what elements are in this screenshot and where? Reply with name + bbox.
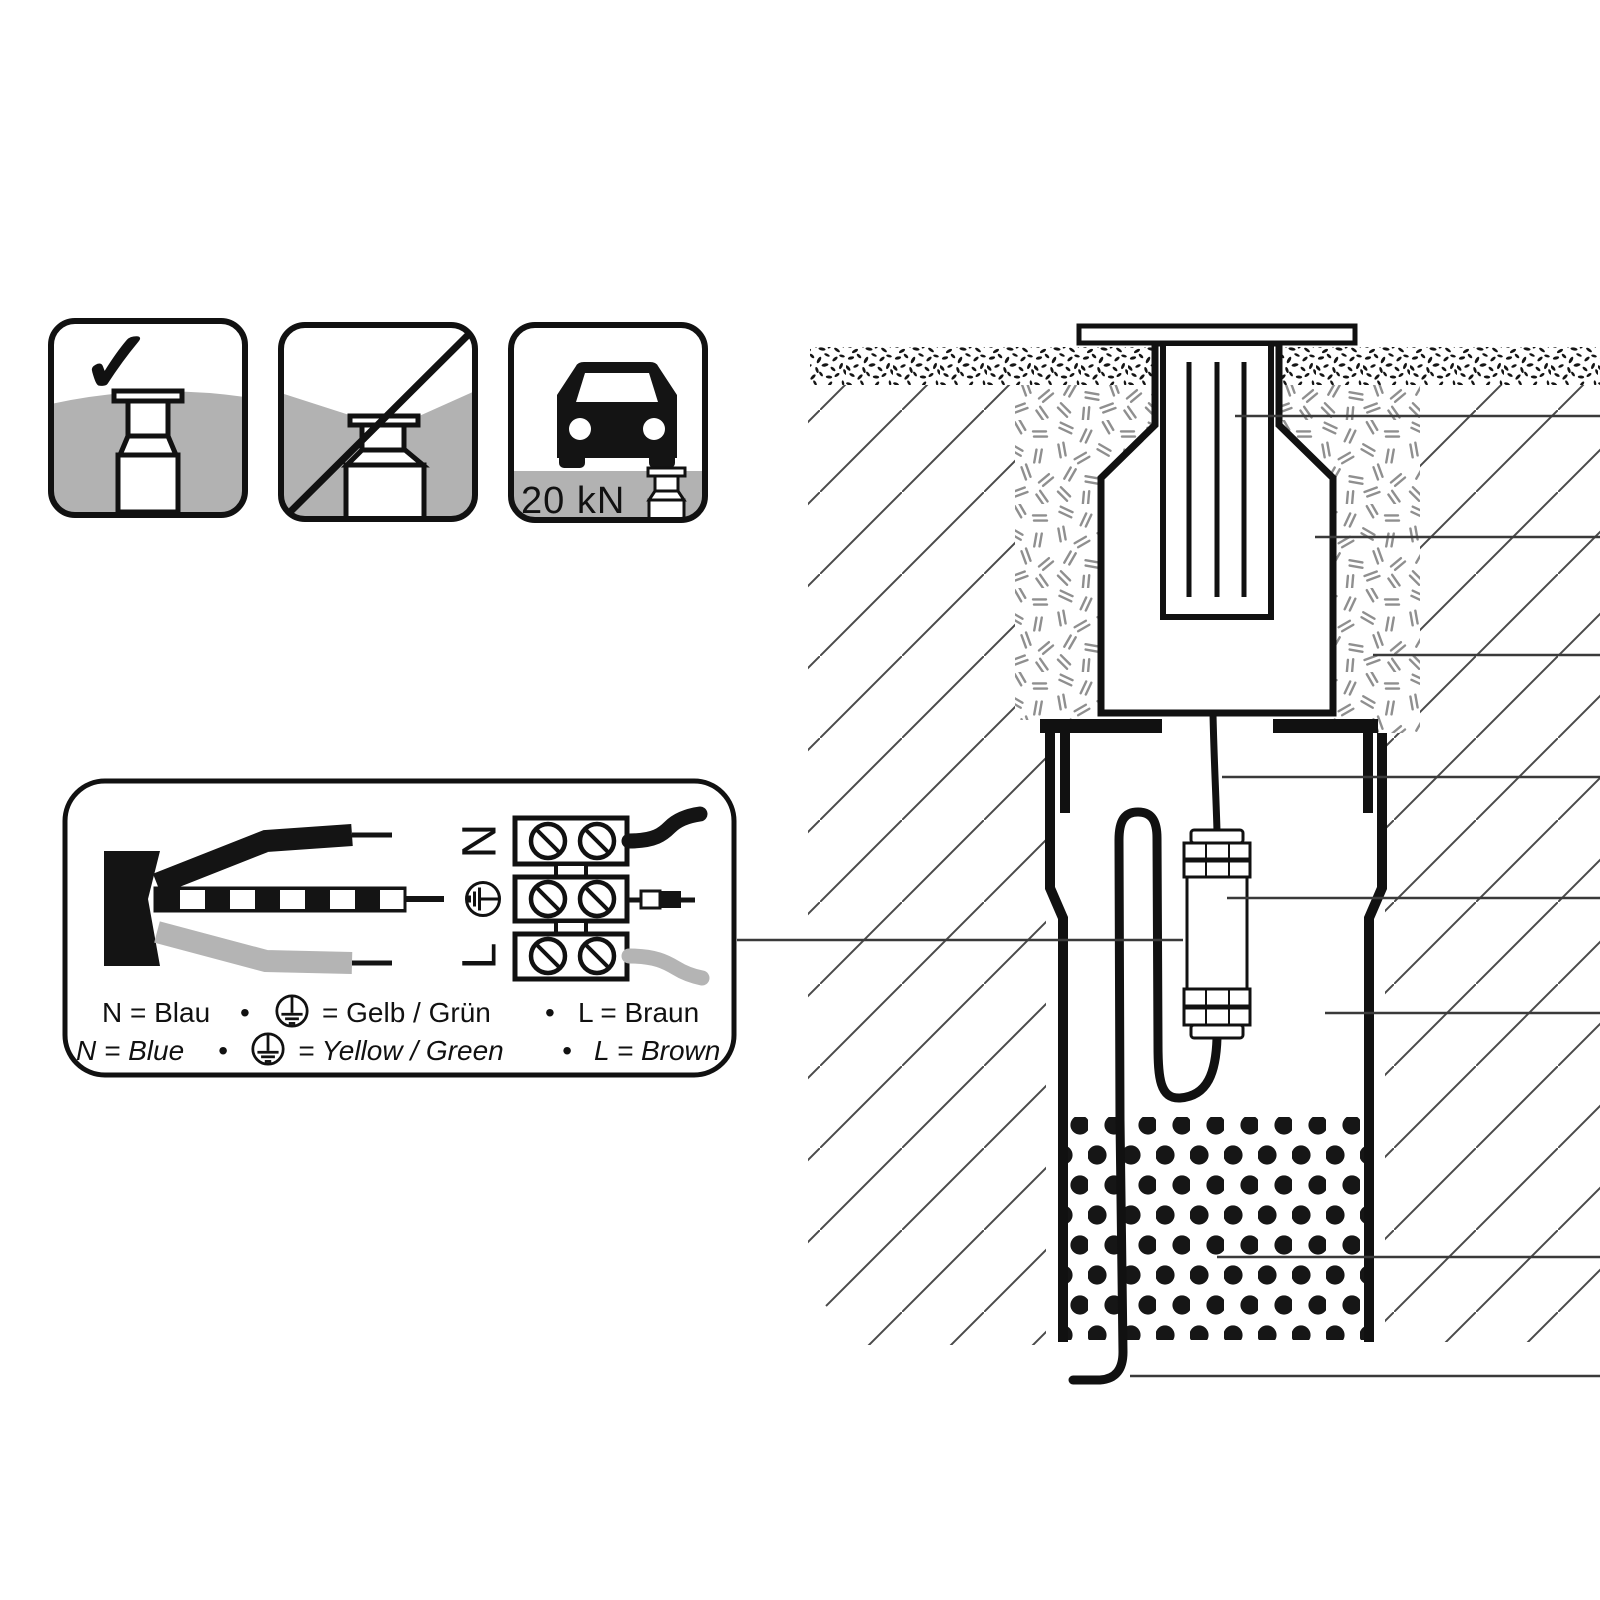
icon-allowed: ✓ <box>51 313 245 515</box>
legend-en-neutral: N = Blue <box>76 1035 184 1066</box>
legend-en-earth: = Yellow / Green <box>298 1035 504 1066</box>
icon-not-allowed <box>281 325 475 523</box>
legend-bullet: • <box>240 997 250 1028</box>
check-icon: ✓ <box>80 313 154 412</box>
legend-bullet: • <box>218 1035 228 1066</box>
cover-plate <box>1079 326 1355 343</box>
icon-drive-over: 20 kN <box>511 325 705 522</box>
fixture-cable <box>1213 714 1217 831</box>
topsoil-band-right <box>1282 347 1600 385</box>
sleeve-wall-right <box>1369 733 1382 1342</box>
legend-en: N = Blue • = Yellow / Green • L = Brown <box>76 1034 720 1066</box>
legend-de-line: L = Braun <box>578 997 699 1028</box>
sleeve-flange-right <box>1273 719 1378 733</box>
legend-en-line: L = Brown <box>594 1035 720 1066</box>
terminal-label-l: L <box>454 943 507 970</box>
legend-de: N = Blau • = Gelb / Grün • L = Braun <box>102 996 699 1028</box>
legend-bullet: • <box>562 1035 572 1066</box>
load-rating-label: 20 kN <box>521 480 625 522</box>
cross-section <box>737 326 1600 1380</box>
terminal-label-n: N <box>454 824 507 859</box>
topsoil-band-left <box>810 347 1152 385</box>
cable-connector <box>1184 830 1250 1038</box>
wiring-diagram: N L <box>65 781 734 1075</box>
sleeve-clip-left <box>1060 733 1070 813</box>
lamp-insert <box>1163 343 1271 617</box>
sleeve-flange-left <box>1040 719 1162 733</box>
fixture-pictogram <box>648 468 685 522</box>
soil-hatch-left <box>808 385 1046 1345</box>
legend-de-earth: = Gelb / Grün <box>322 997 491 1028</box>
wire-earth <box>155 888 405 911</box>
car-icon <box>557 362 677 468</box>
gravel-drainage <box>1068 1117 1364 1340</box>
instruction-sheet: ✓ <box>0 0 1600 1600</box>
sleeve-wall-left <box>1050 733 1063 1342</box>
diagram-svg: ✓ <box>0 0 1600 1600</box>
legend-de-neutral: N = Blau <box>102 997 210 1028</box>
sleeve-clip-right <box>1363 733 1373 813</box>
legend-bullet: • <box>545 997 555 1028</box>
